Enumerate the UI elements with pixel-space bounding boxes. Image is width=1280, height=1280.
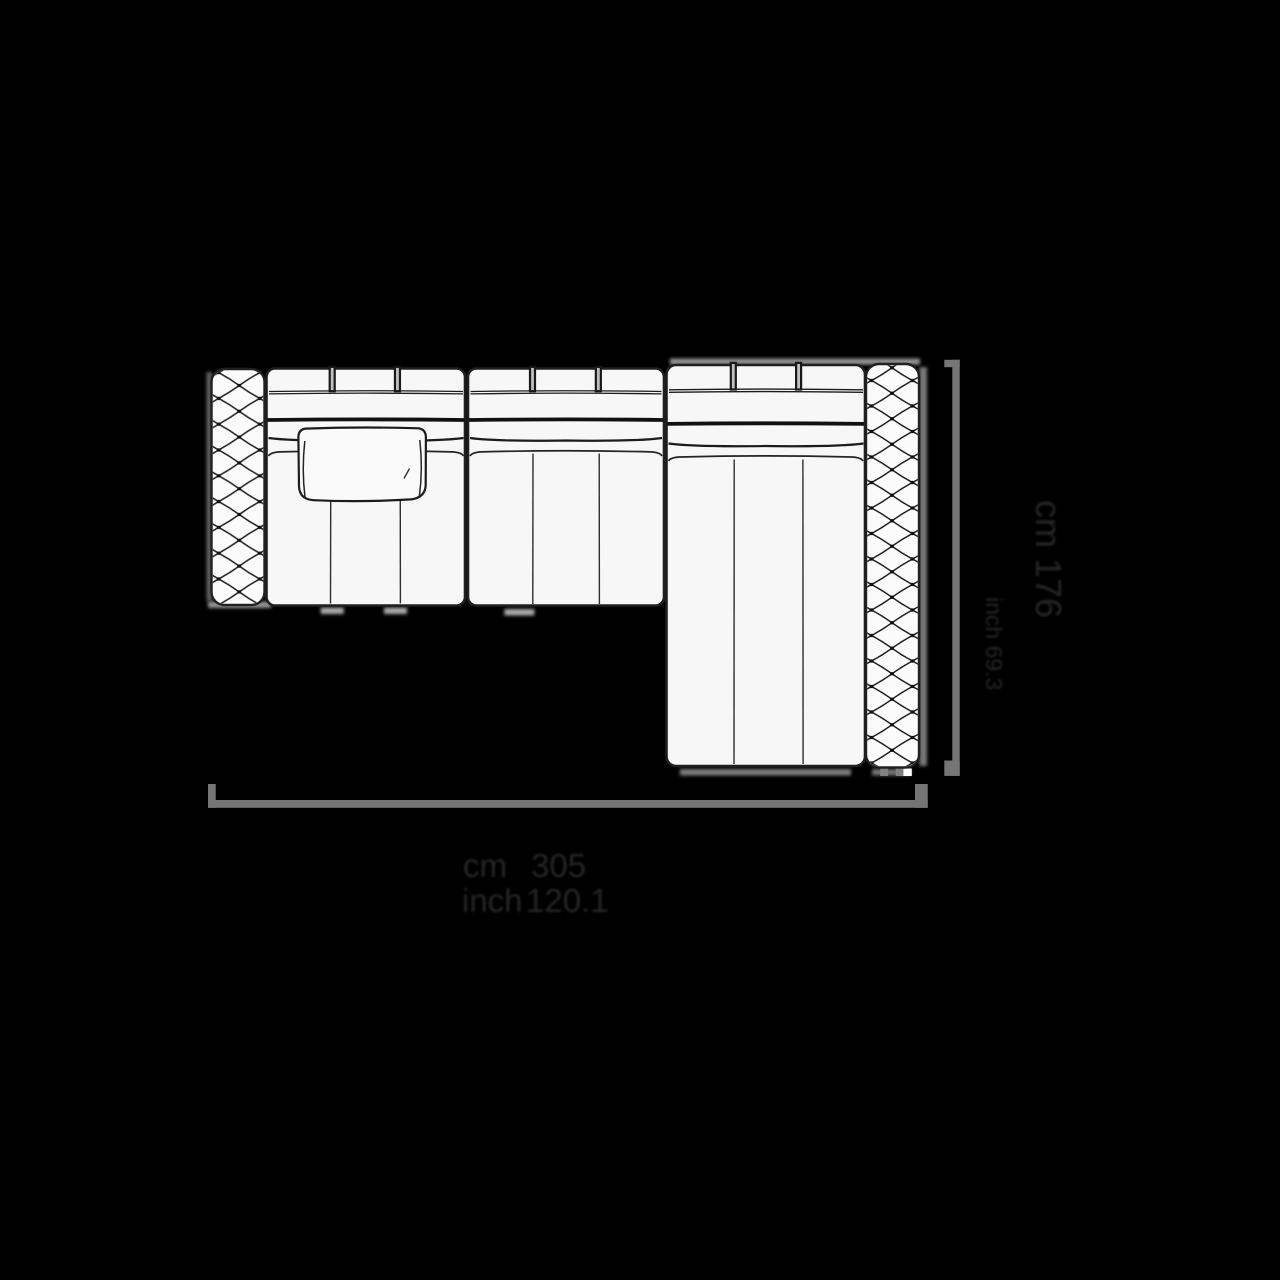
svg-text:cm 176: cm 176 xyxy=(1028,500,1069,618)
svg-text:inch120.1: inch120.1 xyxy=(462,882,609,919)
svg-text:inch 69.3: inch 69.3 xyxy=(981,597,1007,690)
